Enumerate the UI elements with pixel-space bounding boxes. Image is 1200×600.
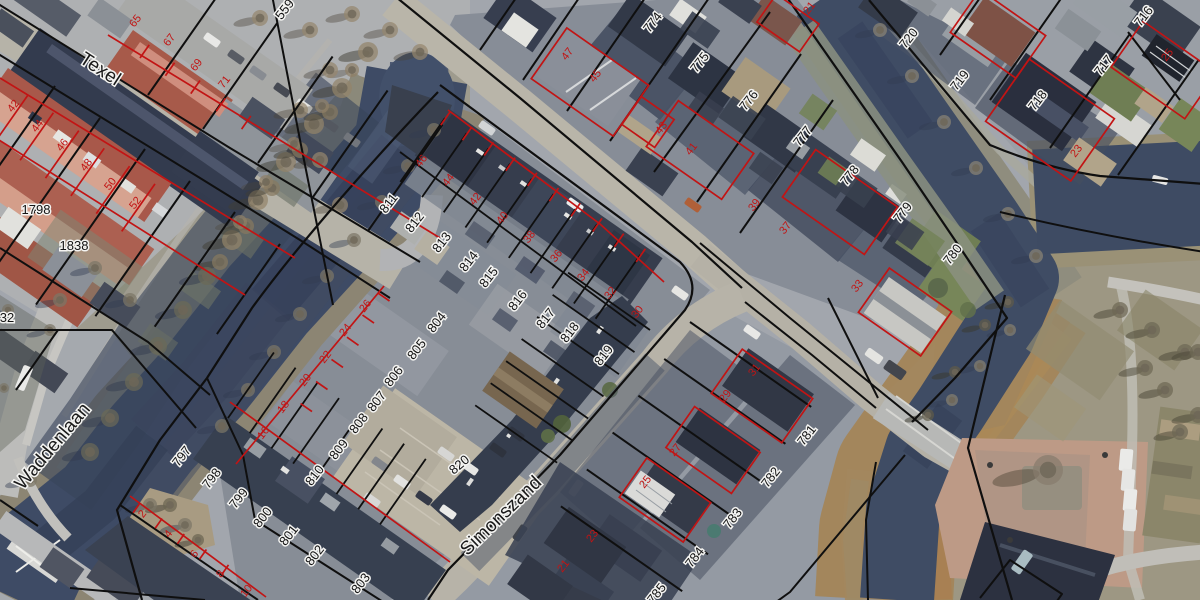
svg-text:1798: 1798 [22,202,51,217]
svg-text:1838: 1838 [60,238,89,253]
svg-text:32: 32 [0,310,14,325]
